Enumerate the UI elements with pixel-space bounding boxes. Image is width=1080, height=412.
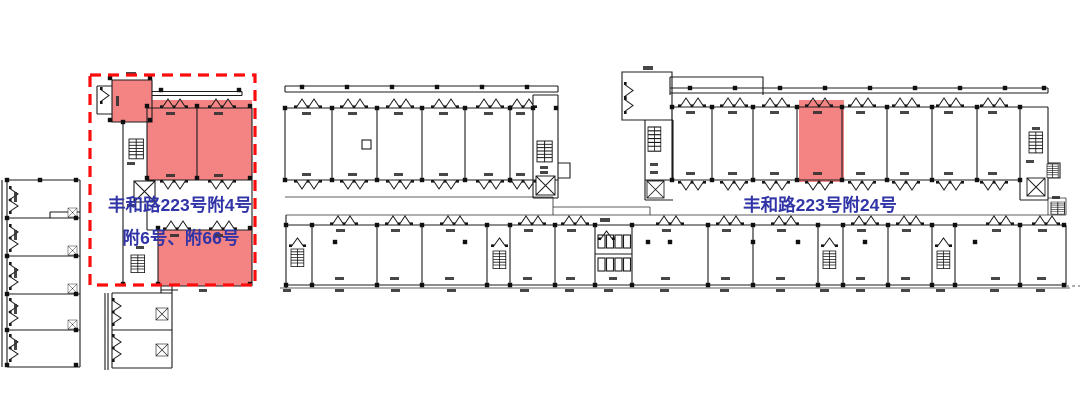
column-mark: [930, 105, 934, 109]
label-smudge: [391, 229, 400, 232]
label-smudge: [391, 289, 400, 292]
column-mark: [930, 178, 934, 182]
column-mark: [5, 216, 9, 220]
label-smudge: [302, 112, 311, 115]
label-smudge: [856, 277, 865, 280]
door-icon: [431, 180, 459, 189]
label-smudge: [686, 172, 695, 175]
column-mark: [795, 105, 799, 109]
column-mark: [823, 86, 827, 90]
label-smudge: [199, 289, 207, 292]
elevator-icon: [1027, 178, 1045, 196]
elevator-icon: [156, 308, 168, 320]
column-mark: [1042, 86, 1046, 90]
building-bottom-block: [280, 215, 1080, 288]
elevator-icon: [68, 320, 77, 329]
label-smudge: [520, 289, 529, 292]
stair-icon: [937, 251, 950, 269]
label-smudge: [660, 289, 669, 292]
column-mark: [248, 226, 252, 230]
column-mark: [841, 223, 845, 227]
label-smudge: [447, 289, 456, 292]
column-mark: [375, 106, 379, 110]
label-smudge: [348, 173, 357, 176]
label-smudge: [1038, 229, 1047, 232]
label-smudge: [14, 192, 17, 202]
column-mark: [485, 283, 489, 287]
column-mark: [710, 105, 714, 109]
column-mark: [508, 223, 512, 227]
label-smudge: [728, 172, 737, 175]
column-mark: [710, 178, 714, 182]
label-smudge: [988, 172, 997, 175]
door-icon: [330, 216, 358, 225]
door-icon: [720, 98, 748, 107]
label-smudge: [439, 112, 448, 115]
column-mark: [751, 223, 755, 227]
column-mark: [284, 283, 288, 287]
stair-icon: [493, 251, 506, 269]
door-icon: [386, 99, 414, 108]
column-mark: [913, 86, 917, 90]
column-mark: [531, 106, 535, 110]
label-smudge: [776, 289, 785, 292]
elevator-icon: [68, 284, 77, 293]
door-icon: [936, 98, 964, 107]
door-icon: [476, 99, 504, 108]
column-mark: [733, 86, 737, 90]
door-icon: [340, 180, 368, 189]
column-mark: [508, 178, 512, 182]
highlighted-room-annex-main[interactable]: [147, 100, 252, 180]
label-smudge: [166, 174, 175, 177]
column-mark: [953, 283, 957, 287]
label-smudge: [944, 172, 953, 175]
elevator-icon: [536, 176, 555, 195]
column-mark: [375, 223, 379, 227]
door-icon: [851, 216, 879, 225]
label-smudge: [609, 277, 617, 280]
label-smudge: [335, 277, 344, 280]
column-mark: [5, 178, 9, 182]
elevator-icon: [68, 208, 77, 217]
label-left-unit-line1: 丰和路223号附4号: [108, 195, 252, 215]
door-icon: [431, 99, 459, 108]
label-smudge: [445, 277, 454, 280]
stair-icon: [537, 141, 552, 162]
door-icon: [935, 238, 952, 247]
label-right-unit: 丰和路223号附24号: [743, 195, 897, 215]
door-icon: [980, 181, 1008, 190]
label-smudge: [1037, 277, 1046, 280]
label-smudge: [991, 277, 1000, 280]
column-mark: [310, 283, 314, 287]
wc-stalls: [598, 235, 631, 271]
column-mark: [958, 86, 962, 90]
label-smudge: [936, 289, 945, 292]
label-smudge: [992, 229, 1001, 232]
label-smudge: [856, 289, 865, 292]
column-mark: [74, 328, 78, 332]
column-mark: [480, 85, 484, 89]
column-mark: [525, 85, 529, 89]
stair-icon: [648, 127, 661, 151]
column-mark: [420, 106, 424, 110]
column-mark: [630, 283, 634, 287]
label-smudge: [446, 229, 455, 232]
stair-icon: [823, 251, 836, 269]
label-smudge: [770, 111, 779, 114]
door-icon: [986, 216, 1014, 225]
label-smudge: [902, 229, 911, 232]
column-mark: [420, 283, 424, 287]
door-icon: [821, 238, 838, 247]
elevator-icon: [647, 181, 664, 198]
door-icon: [678, 181, 706, 190]
column-mark: [840, 178, 844, 182]
column-mark: [38, 178, 42, 182]
stair-icon: [131, 255, 145, 273]
stair-icon: [291, 249, 304, 267]
column-mark: [145, 104, 149, 108]
column-mark: [868, 86, 872, 90]
column-mark: [796, 240, 800, 244]
label-smudge: [661, 277, 670, 280]
label-smudge: [516, 173, 525, 176]
column-mark: [841, 283, 845, 287]
column-mark: [751, 240, 755, 244]
column-mark: [74, 292, 78, 296]
stair-icon: [1029, 132, 1043, 153]
label-smudge: [335, 289, 344, 292]
door-icon: [100, 87, 109, 104]
label-smudge: [686, 111, 695, 114]
label-smudge: [643, 66, 653, 70]
label-smudge: [820, 289, 829, 292]
label-smudge: [728, 111, 737, 114]
column-mark: [74, 254, 78, 258]
door-icon: [892, 181, 920, 190]
column-mark: [283, 178, 287, 182]
column-mark: [930, 283, 934, 287]
door-icon: [980, 98, 1008, 107]
column-mark: [283, 106, 287, 110]
label-smudge: [988, 111, 997, 114]
column-mark: [668, 240, 672, 244]
column-mark: [248, 176, 252, 180]
label-smudge: [540, 171, 548, 174]
column-mark: [5, 254, 9, 258]
door-icon: [518, 216, 546, 225]
label-smudge: [127, 162, 135, 165]
column-mark: [1018, 105, 1022, 109]
door-icon: [805, 181, 833, 190]
column-mark: [886, 283, 890, 287]
door-icon: [294, 99, 322, 108]
label-smudge: [777, 229, 786, 232]
column-mark: [485, 223, 489, 227]
door-icon: [112, 334, 121, 362]
column-mark: [195, 104, 199, 108]
column-mark: [145, 176, 149, 180]
door-icon: [762, 181, 790, 190]
door-icon: [624, 82, 633, 99]
column-mark: [5, 292, 9, 296]
label-smudge: [302, 173, 311, 176]
column-mark: [330, 178, 334, 182]
label-smudge: [650, 171, 658, 174]
door-icon: [771, 216, 799, 225]
column-mark: [463, 240, 467, 244]
label-smudge: [439, 173, 448, 176]
column-mark: [670, 178, 674, 182]
column-mark: [1018, 223, 1022, 227]
door-icon: [892, 98, 920, 107]
label-smudge: [348, 112, 357, 115]
column-mark: [1062, 283, 1066, 287]
label-smudge: [484, 173, 493, 176]
column-mark: [885, 178, 889, 182]
door-icon: [561, 216, 589, 225]
label-smudge: [214, 174, 223, 177]
door-icon: [848, 98, 876, 107]
label-smudge: [813, 172, 822, 175]
column-mark: [706, 283, 710, 287]
column-mark: [886, 223, 890, 227]
label-smudge: [721, 277, 730, 280]
label-smudge: [901, 277, 910, 280]
label-smudge: [14, 268, 17, 278]
label-smudge: [166, 112, 175, 115]
door-icon: [848, 181, 876, 190]
column-mark: [5, 363, 9, 367]
column-mark: [706, 223, 710, 227]
label-smudge: [116, 96, 119, 106]
label-smudge: [900, 172, 909, 175]
stair-icon: [1051, 202, 1065, 214]
label-smudge: [901, 289, 910, 292]
column-mark: [646, 240, 650, 244]
column-mark: [975, 105, 979, 109]
label-left-unit-line2: 附6号、附66号: [123, 228, 240, 248]
column-mark: [553, 223, 557, 227]
label-smudge: [770, 172, 779, 175]
column-mark: [751, 178, 755, 182]
column-mark: [159, 88, 163, 92]
label-smudge: [14, 340, 17, 350]
column-mark: [333, 240, 337, 244]
label-smudge: [650, 163, 658, 166]
door-icon: [1032, 216, 1060, 225]
column-mark: [593, 223, 597, 227]
column-mark: [863, 240, 867, 244]
column-mark: [593, 283, 597, 287]
label-smudge: [394, 112, 403, 115]
label-smudge: [523, 277, 532, 280]
label-smudge: [390, 277, 399, 280]
elevator-icon: [156, 344, 168, 356]
column-mark: [420, 178, 424, 182]
column-mark: [953, 223, 957, 227]
column-mark: [778, 86, 782, 90]
column-mark: [463, 178, 467, 182]
column-mark: [553, 283, 557, 287]
door-icon: [716, 216, 744, 225]
label-smudge: [722, 229, 731, 232]
floor-plan-page: 丰和路223号附4号 附6号、附66号 丰和路223号附24号: [0, 0, 1080, 412]
door-icon: [386, 180, 414, 189]
column-mark: [310, 223, 314, 227]
label-smudge: [283, 289, 291, 292]
label-smudge: [14, 304, 17, 314]
label-smudge: [567, 229, 576, 232]
column-mark: [840, 105, 844, 109]
door-icon: [936, 181, 964, 190]
label-smudge: [856, 172, 865, 175]
building-middle-block: [285, 86, 650, 215]
column-mark: [1018, 178, 1022, 182]
column-mark: [795, 178, 799, 182]
column-mark: [284, 223, 288, 227]
label-smudge: [1036, 289, 1045, 292]
column-mark: [375, 283, 379, 287]
column-mark: [435, 85, 439, 89]
column-mark: [463, 106, 467, 110]
label-smudge: [662, 229, 671, 232]
floor-plan-canvas: 丰和路223号附4号 附6号、附66号 丰和路223号附24号: [0, 0, 1080, 412]
column-mark: [330, 106, 334, 110]
column-mark: [5, 328, 9, 332]
label-smudge: [600, 218, 610, 222]
label-smudge: [857, 229, 866, 232]
column-mark: [751, 105, 755, 109]
column-mark: [74, 363, 78, 367]
stair-icon: [129, 139, 143, 159]
column-mark: [554, 106, 558, 110]
label-smudge: [990, 289, 999, 292]
column-mark: [930, 223, 934, 227]
column-mark: [74, 216, 78, 220]
column-mark: [630, 223, 634, 227]
door-icon: [208, 180, 236, 189]
column-mark: [195, 176, 199, 180]
label-smudge: [604, 289, 613, 292]
door-icon: [340, 99, 368, 108]
column-mark: [108, 118, 112, 122]
label-smudge: [813, 111, 822, 114]
column-mark: [508, 106, 512, 110]
door-icon: [385, 216, 413, 225]
label-smudge: [516, 112, 525, 115]
column-mark: [973, 240, 977, 244]
label-smudge: [540, 166, 548, 169]
column-mark: [885, 105, 889, 109]
column-mark: [816, 283, 820, 287]
label-smudge: [336, 229, 345, 232]
column-mark: [1062, 223, 1066, 227]
label-smudge: [565, 289, 574, 292]
label-smudge: [856, 111, 865, 114]
door-icon: [762, 98, 790, 107]
column-mark: [508, 283, 512, 287]
column-mark: [670, 105, 674, 109]
door-icon: [294, 180, 322, 189]
label-smudge: [944, 111, 953, 114]
label-smudge: [14, 230, 17, 240]
column-mark: [300, 85, 304, 89]
label-smudge: [394, 173, 403, 176]
column-mark: [148, 118, 152, 122]
label-smudge: [776, 277, 785, 280]
column-mark: [237, 88, 241, 92]
door-icon: [491, 238, 508, 247]
label-smudge: [1032, 127, 1040, 130]
column-mark: [751, 283, 755, 287]
elevator-icon: [68, 246, 77, 255]
column-mark: [1003, 86, 1007, 90]
column-mark: [1018, 283, 1022, 287]
door-icon: [289, 238, 306, 247]
door-icon: [160, 180, 188, 189]
column-mark: [375, 178, 379, 182]
door-icon: [720, 181, 748, 190]
door-icon: [678, 98, 706, 107]
column-mark: [74, 178, 78, 182]
label-smudge: [900, 111, 909, 114]
door-icon: [624, 97, 633, 114]
label-smudge: [1052, 196, 1060, 199]
door-icon: [656, 216, 684, 225]
label-smudge: [1026, 160, 1034, 163]
label-smudge: [484, 112, 493, 115]
column-mark: [816, 223, 820, 227]
column-mark: [975, 178, 979, 182]
door-icon: [896, 216, 924, 225]
label-smudge: [720, 289, 729, 292]
column-mark: [248, 104, 252, 108]
column-mark: [345, 85, 349, 89]
door-icon: [476, 180, 504, 189]
door-icon: [112, 298, 121, 326]
door-icon: [440, 216, 468, 225]
label-smudge: [214, 112, 223, 115]
column-mark: [420, 223, 424, 227]
stair-icon: [1047, 164, 1058, 178]
label-smudge: [566, 277, 575, 280]
column-mark: [121, 120, 125, 124]
column-mark: [390, 85, 394, 89]
label-smudge: [524, 229, 533, 232]
column-mark: [688, 86, 692, 90]
